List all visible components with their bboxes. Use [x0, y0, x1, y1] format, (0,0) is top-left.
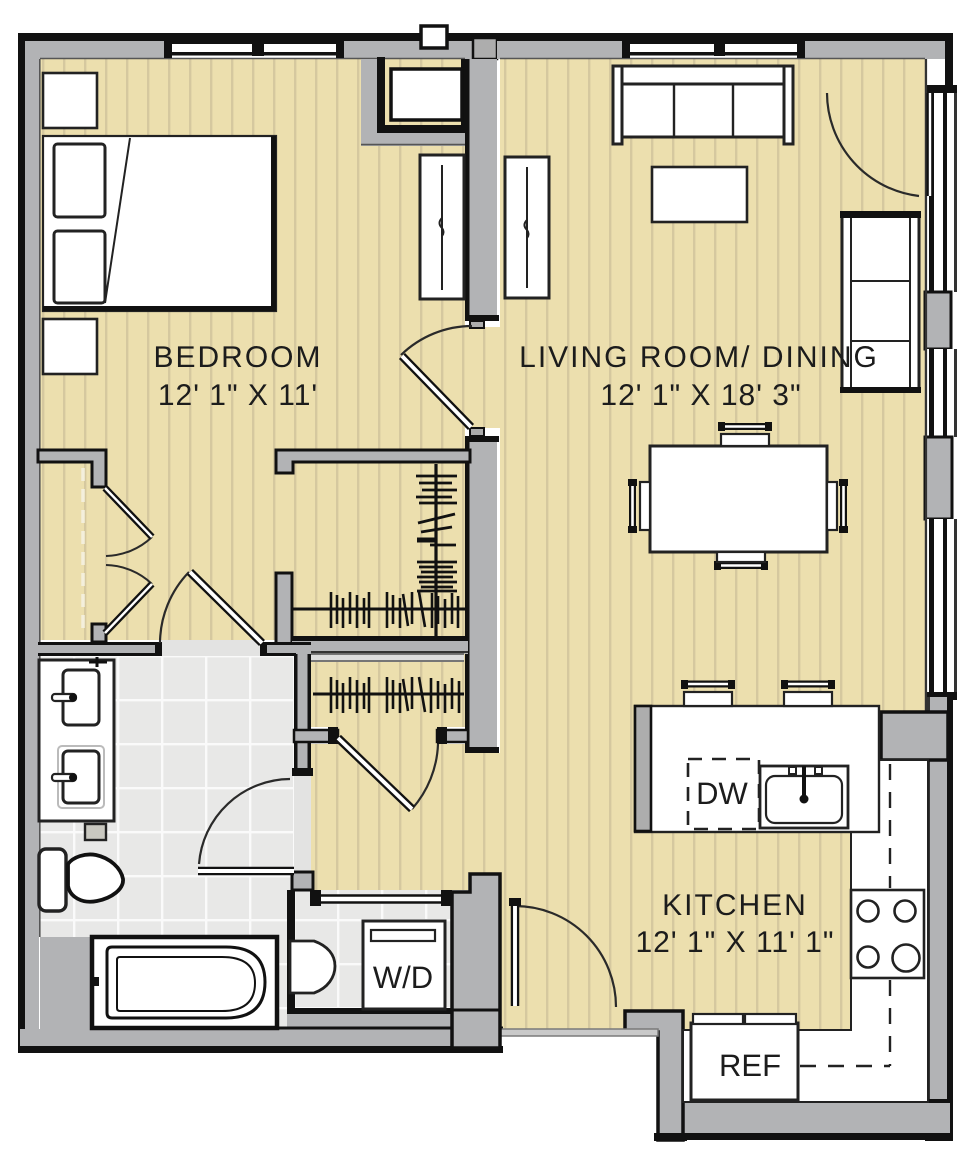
svg-text:12' 1" X 18' 3": 12' 1" X 18' 3" — [600, 379, 801, 412]
svg-text:DW: DW — [696, 776, 748, 811]
svg-text:REF: REF — [719, 1048, 781, 1083]
svg-text:BEDROOM: BEDROOM — [153, 341, 322, 374]
svg-text:LIVING ROOM/ DINING: LIVING ROOM/ DINING — [519, 341, 879, 374]
svg-text:W/D: W/D — [373, 960, 433, 995]
svg-text:KITCHEN: KITCHEN — [662, 889, 808, 922]
svg-text:12' 1" X 11': 12' 1" X 11' — [158, 379, 318, 412]
svg-text:12' 1" X 11' 1": 12' 1" X 11' 1" — [636, 926, 835, 959]
